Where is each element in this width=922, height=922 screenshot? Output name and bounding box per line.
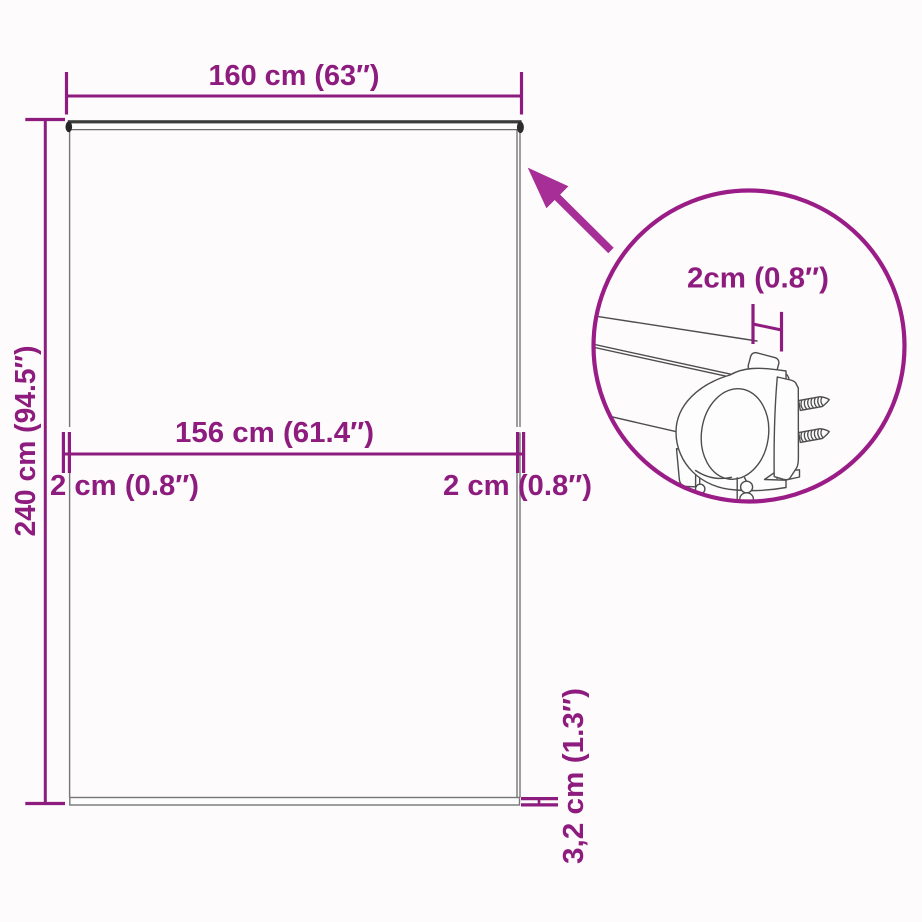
svg-text:156 cm (61.4″): 156 cm (61.4″) bbox=[175, 417, 374, 449]
svg-text:2 cm (0.8″): 2 cm (0.8″) bbox=[50, 470, 199, 502]
svg-text:240 cm (94.5″): 240 cm (94.5″) bbox=[10, 346, 42, 537]
svg-text:2cm (0.8″): 2cm (0.8″) bbox=[687, 263, 829, 295]
svg-text:3,2 cm (1.3″): 3,2 cm (1.3″) bbox=[558, 688, 590, 864]
svg-text:160 cm (63″): 160 cm (63″) bbox=[209, 60, 380, 92]
svg-text:2 cm (0.8″): 2 cm (0.8″) bbox=[443, 470, 592, 502]
